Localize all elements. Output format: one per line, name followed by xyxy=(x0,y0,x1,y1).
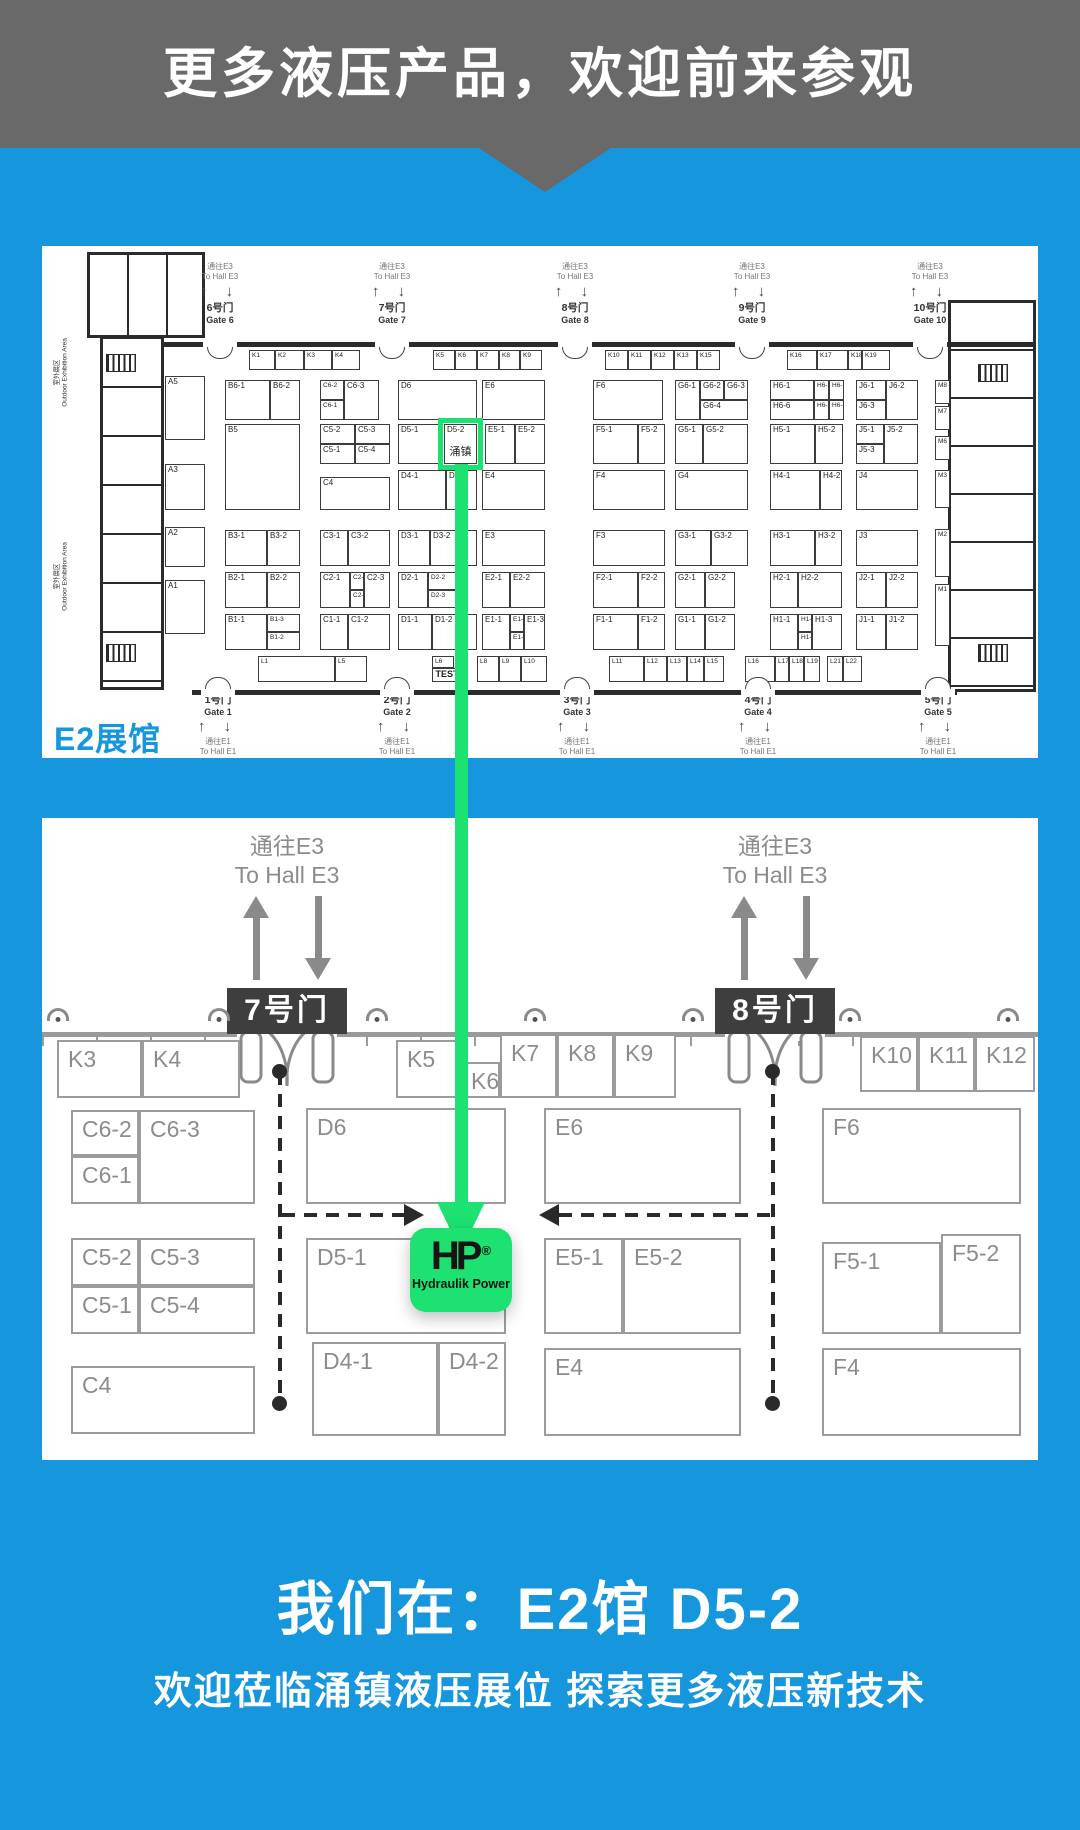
booth-label: C5-2 xyxy=(82,1245,132,1270)
booth-h1-2: H1-2 xyxy=(798,614,812,632)
booth-label: G1-1 xyxy=(678,616,696,625)
booth-k19: K19 xyxy=(862,350,890,370)
booth-h1-1: H1-1 xyxy=(770,614,798,650)
booth-label: H3-2 xyxy=(818,532,835,541)
booth-g6-4: G6-4 xyxy=(700,400,748,420)
booth-j6-2: J6-2 xyxy=(886,380,918,420)
gate-label-gate-7: 通往E3To Hall E3↑ ↓7号门Gate 7 xyxy=(352,262,432,325)
booth-k5: K5 xyxy=(396,1040,460,1098)
gate-label-gate-8: 通往E3To Hall E3↑ ↓8号门Gate 8 xyxy=(535,262,615,325)
booth-label: B1-1 xyxy=(228,616,245,625)
booth-label: J4 xyxy=(859,472,867,481)
booth-label: K3 xyxy=(68,1047,96,1072)
booth-label: K11 xyxy=(631,352,642,359)
gate-text: Gate 9 xyxy=(712,315,792,326)
booth-label: H6-2 xyxy=(817,382,829,389)
booth-g3-2: G3-2 xyxy=(711,530,748,566)
gate-door-icon xyxy=(564,677,590,689)
booth-k3: K3 xyxy=(304,350,332,370)
to-hall-label: To Hall E3 xyxy=(235,861,340,890)
booth-label: C4 xyxy=(82,1373,111,1398)
booth-label: B3-1 xyxy=(228,532,245,541)
booth-label: C4 xyxy=(323,479,333,488)
booth-h6-2: H6-2 xyxy=(814,380,829,400)
booth-l14: L14 xyxy=(687,656,704,682)
gate-text: To Hall E3 xyxy=(180,272,260,282)
booth-m8: M8 xyxy=(935,380,950,404)
booth-detail-panel: K3K4K5K6K7K8K9K10K11K12C6-2C6-1C6-3D6E6F… xyxy=(42,818,1038,1460)
booth-j1-1: J1-1 xyxy=(856,614,886,650)
booth-e5-1: E5-1 xyxy=(544,1238,623,1334)
booth-label: D6 xyxy=(317,1115,346,1140)
booth-label: G5-2 xyxy=(706,426,724,435)
route-dashed-line xyxy=(278,1072,282,1402)
booth-k3: K3 xyxy=(57,1040,142,1098)
booth-label: H6-6 xyxy=(773,402,790,411)
booth-k15: K15 xyxy=(697,350,720,370)
booth-f1-2: F1-2 xyxy=(638,614,665,650)
booth-label: K19 xyxy=(865,352,877,359)
booth-label: L1 xyxy=(261,658,268,665)
booth-c6-2: C6-2 xyxy=(71,1110,139,1156)
booth-d2-3: D2-3 xyxy=(428,590,456,608)
up-arrow-icon xyxy=(243,896,269,980)
booth-c5-4: C5-4 xyxy=(355,444,390,464)
booth-label: A5 xyxy=(168,378,178,387)
booth-l21: L21 xyxy=(827,656,843,682)
booth-c5-2: C5-2 xyxy=(320,424,355,444)
booth-l6: L6 xyxy=(432,656,454,668)
booth-g2-2: G2-2 xyxy=(705,572,735,608)
booth-h3-1: H3-1 xyxy=(770,530,815,566)
to-hall-label: 通往E3 xyxy=(250,832,324,861)
exhibitor-logo-badge: HP® Hydraulik Power xyxy=(410,1228,512,1312)
booth-l17: L17 xyxy=(775,656,789,682)
route-arrowhead-icon xyxy=(539,1204,559,1226)
booth-label: M3 xyxy=(938,472,947,479)
booth-label: L5 xyxy=(338,658,345,665)
booth-h2-1: H2-1 xyxy=(770,572,798,608)
booth-a1: A1 xyxy=(165,580,205,634)
booth-k7: K7 xyxy=(477,350,499,370)
gate-text: Gate 5 xyxy=(898,707,978,718)
booth-c3-2: C3-2 xyxy=(348,530,390,566)
gate-label-gate-2: 2号门Gate 2↑ ↓通往E1To Hall E1 xyxy=(357,694,437,757)
booth-c2-1: C2-1 xyxy=(320,572,350,608)
direction-arrows-icon: ↑ ↓ xyxy=(180,283,260,302)
booth-label: L14 xyxy=(690,658,701,665)
booth-d4-1: D4-1 xyxy=(312,1342,438,1436)
gate-label-gate-6: 通往E3To Hall E3↑ ↓6号门Gate 6 xyxy=(180,262,260,325)
booth-label: F5-2 xyxy=(952,1241,999,1266)
booth-f6: F6 xyxy=(822,1108,1021,1204)
booth-label: K8 xyxy=(502,352,510,359)
direction-arrows-icon: ↑ ↓ xyxy=(357,718,437,737)
booth-label: M2 xyxy=(938,531,947,538)
gate-label-gate-3: 3号门Gate 3↑ ↓通往E1To Hall E1 xyxy=(537,694,617,757)
booth-g5-2: G5-2 xyxy=(703,424,748,464)
route-dashed-line xyxy=(559,1213,771,1217)
booth-label: D6 xyxy=(401,382,411,391)
booth-d5-1: D5-1 xyxy=(398,424,442,464)
booth-e2-2: E2-2 xyxy=(510,572,545,608)
booth-label: F5-2 xyxy=(641,426,657,435)
top-banner: 更多液压产品，欢迎前来参观 xyxy=(0,0,1080,148)
gate-text: 通往E1 xyxy=(537,737,617,747)
direction-arrows-icon: ↑ ↓ xyxy=(712,283,792,302)
booth-label: B5 xyxy=(228,426,238,435)
booth-e4: E4 xyxy=(482,470,545,510)
route-dot xyxy=(765,1396,780,1411)
booth-label: K6 xyxy=(471,1069,499,1094)
booth-a3: A3 xyxy=(165,464,205,510)
booth-e5-2: E5-2 xyxy=(515,424,545,464)
booth-k11: K11 xyxy=(918,1036,975,1092)
gate-text: Gate 2 xyxy=(357,707,437,718)
gate-text: Gate 10 xyxy=(890,315,970,326)
booth-j1-2: J1-2 xyxy=(886,614,918,650)
booth-label: E1-3 xyxy=(527,616,544,625)
booth-label: J6-1 xyxy=(859,382,875,391)
booth-label: K8 xyxy=(568,1041,596,1066)
gate-door-icon xyxy=(207,347,233,359)
gate-text: 通往E3 xyxy=(712,262,792,272)
booth-j6-1: J6-1 xyxy=(856,380,886,400)
booth-c2-3: C2-3 xyxy=(364,572,390,608)
gate-door-icon xyxy=(379,347,405,359)
booth-j6-3: J6-3 xyxy=(856,400,886,420)
booth-label: D5-2 xyxy=(447,426,464,435)
booth-label: H6-3 xyxy=(832,382,844,389)
booth-label: C2-3 xyxy=(367,574,384,583)
gate-opening xyxy=(921,688,955,697)
direction-arrows-icon: ↑ ↓ xyxy=(352,283,432,302)
booth-label: L15 xyxy=(707,658,718,665)
booth-c2-4: C2-4 xyxy=(350,572,364,590)
booth-g4: G4 xyxy=(675,470,748,510)
booth-k9: K9 xyxy=(520,350,542,370)
gate-opening xyxy=(380,688,414,697)
booth-label: K2 xyxy=(278,352,286,359)
booth-label: K17 xyxy=(820,352,832,359)
booth-k4: K4 xyxy=(332,350,360,370)
booth-label: F5-1 xyxy=(833,1249,880,1274)
booth-label: H5-2 xyxy=(818,426,835,435)
booth-g1-2: G1-2 xyxy=(705,614,735,650)
booth-d4-2: D4-2 xyxy=(438,1342,506,1436)
logo-company-name: Hydraulik Power xyxy=(410,1277,512,1291)
direction-arrows-icon: ↑ ↓ xyxy=(890,283,970,302)
gate-text: 通往E1 xyxy=(178,737,258,747)
booth-g3-1: G3-1 xyxy=(675,530,711,566)
gate-text: To Hall E1 xyxy=(898,747,978,757)
gate-opening xyxy=(201,688,235,697)
gate-door-icon xyxy=(562,347,588,359)
booth-c1-1: C1-1 xyxy=(320,614,348,650)
booth-label: K3 xyxy=(307,352,315,359)
booth-e1-2: E1-2 xyxy=(510,614,524,632)
booth-l9: L9 xyxy=(499,656,521,682)
booth-d6: D6 xyxy=(306,1108,506,1204)
banner-notch xyxy=(479,148,611,192)
booth-h3-2: H3-2 xyxy=(815,530,842,566)
gate-text: 7号门 xyxy=(352,302,432,315)
booth-label: G3-1 xyxy=(678,532,696,541)
booth-label: L17 xyxy=(778,658,789,665)
booth-label: L9 xyxy=(502,658,509,665)
booth-m1: M1 xyxy=(935,584,950,646)
building-outline xyxy=(100,336,164,690)
security-camera-icon xyxy=(524,1008,546,1021)
booth-l19: L19 xyxy=(804,656,820,682)
booth-c2-2: C2-2 xyxy=(350,590,364,608)
security-camera-icon xyxy=(997,1008,1019,1021)
booth-h6-5: H6-5 xyxy=(814,400,829,420)
direction-arrows xyxy=(243,896,331,980)
booth-k18: K18 xyxy=(848,350,862,370)
booth-label: H1-3 xyxy=(815,616,832,625)
booth-label: J1-1 xyxy=(859,616,875,625)
booth-label: D5-1 xyxy=(317,1245,367,1270)
booth-label: C6-2 xyxy=(323,382,337,389)
booth-e6: E6 xyxy=(544,1108,741,1204)
direction-arrows-icon: ↑ ↓ xyxy=(718,718,798,737)
booth-label: G5-1 xyxy=(678,426,696,435)
booth-label: L18 xyxy=(792,658,803,665)
building-outline xyxy=(948,300,1036,692)
booth-label: E5-2 xyxy=(634,1245,683,1270)
booth-k5: K5 xyxy=(433,350,455,370)
booth-f5-1: F5-1 xyxy=(593,424,638,464)
direction-arrows xyxy=(731,896,819,980)
booth-label: M6 xyxy=(938,438,947,445)
to-hall-label: 通往E3 xyxy=(738,832,812,861)
booth-label: G6-2 xyxy=(703,382,721,391)
booth-label: K4 xyxy=(335,352,343,359)
outdoor-area-label: 室外展区 Outdoor Exhibition Area xyxy=(54,520,71,632)
booth-c6-1: C6-1 xyxy=(320,400,344,420)
gate-label-gate-10: 通往E3To Hall E3↑ ↓10号门Gate 10 xyxy=(890,262,970,325)
booth-l13: L13 xyxy=(667,656,687,682)
booth-k7: K7 xyxy=(500,1034,557,1098)
booth-label: D2-2 xyxy=(431,574,445,581)
booth-h6-4: H6-4 xyxy=(829,400,844,420)
booth-label: C3-2 xyxy=(351,532,368,541)
hall-wall xyxy=(164,342,1035,347)
booth-d4-1: D4-1 xyxy=(398,470,446,510)
static xyxy=(315,896,322,958)
booth-k9: K9 xyxy=(614,1034,676,1098)
booth-h4-2: H4-2 xyxy=(820,470,842,510)
booth-label: H1-4 xyxy=(801,634,812,641)
booth-label: F4 xyxy=(596,472,605,481)
gate-door-icon xyxy=(739,347,765,359)
booth-label: F5-1 xyxy=(596,426,612,435)
booth-b1-2: B1-2 xyxy=(267,632,300,650)
static xyxy=(793,958,819,980)
booth-f4: F4 xyxy=(822,1348,1021,1436)
booth-label: G2-2 xyxy=(708,574,726,583)
booth-j5-1: J5-1 xyxy=(856,424,884,444)
booth-label: E2-1 xyxy=(485,574,502,583)
gate-text: 10号门 xyxy=(890,302,970,315)
booth-label: B1-2 xyxy=(270,634,284,641)
direction-arrows-icon: ↑ ↓ xyxy=(178,718,258,737)
booth-label: D3-1 xyxy=(401,532,418,541)
booth-a5: A5 xyxy=(165,376,205,440)
booth-f5-1: F5-1 xyxy=(822,1242,941,1334)
booth-c6-1: C6-1 xyxy=(71,1156,139,1204)
booth-label: B2-1 xyxy=(228,574,245,583)
booth-h2-2: H2-2 xyxy=(798,572,842,608)
booth-c6-3: C6-3 xyxy=(344,380,379,420)
gate-text: 9号门 xyxy=(712,302,792,315)
hp-logo-icon: HP® xyxy=(410,1236,512,1276)
booth-label: J3 xyxy=(859,532,867,541)
booth-label: C6-3 xyxy=(150,1117,200,1142)
booth-label: H1-2 xyxy=(801,616,812,623)
gate-block-8号门: 通往E3To Hall E38号门 xyxy=(665,832,885,1034)
booth-m3: M3 xyxy=(935,470,950,508)
booth-label: D3-2 xyxy=(433,532,450,541)
booth-g6-2: G6-2 xyxy=(700,380,724,400)
booth-f3: F3 xyxy=(593,530,665,566)
gate-name-badge: 7号门 xyxy=(227,988,347,1034)
booth-c5-4: C5-4 xyxy=(139,1286,255,1334)
gate-text: 6号门 xyxy=(180,302,260,315)
booth-f2-1: F2-1 xyxy=(593,572,638,608)
booth-label: E4 xyxy=(485,472,495,481)
booth-label: E5-2 xyxy=(518,426,535,435)
direction-arrows-icon: ↑ ↓ xyxy=(537,718,617,737)
booth-k10: K10 xyxy=(860,1036,918,1092)
gate-text: Gate 4 xyxy=(718,707,798,718)
booth-label: K9 xyxy=(523,352,531,359)
booth-label: L12 xyxy=(647,658,658,665)
route-arrowhead-icon xyxy=(404,1204,424,1226)
booth-label: H3-1 xyxy=(773,532,790,541)
booth-label: K7 xyxy=(480,352,488,359)
booth-h6-1: H6-1 xyxy=(770,380,814,400)
booth-j3: J3 xyxy=(856,530,918,566)
booth-j2-2: J2-2 xyxy=(886,572,918,608)
booth-d2-1: D2-1 xyxy=(398,572,428,608)
booth-label: D5-1 xyxy=(401,426,418,435)
booth-g1-1: G1-1 xyxy=(675,614,705,650)
gate-text: 通往E1 xyxy=(357,737,437,747)
gate-label-gate-5: 5号门Gate 5↑ ↓通往E1To Hall E1 xyxy=(898,694,978,757)
booth-label: A3 xyxy=(168,466,178,475)
booth-label: C1-2 xyxy=(351,616,368,625)
booth-label: M7 xyxy=(938,408,947,415)
booth-h4-1: H4-1 xyxy=(770,470,820,510)
booth-label: C1-1 xyxy=(323,616,340,625)
booth-k4: K4 xyxy=(142,1040,240,1098)
booth-label: L10 xyxy=(524,658,535,665)
route-dashed-line xyxy=(771,1072,775,1402)
booth-label: B6-2 xyxy=(273,382,290,391)
booth-label: F1-1 xyxy=(596,616,612,625)
booth-label: D2-3 xyxy=(431,592,445,599)
booth-b5: B5 xyxy=(225,424,300,510)
gate-opening xyxy=(560,688,594,697)
booth-label: K15 xyxy=(700,352,712,359)
booth-label: M1 xyxy=(938,586,947,593)
booth-label: K7 xyxy=(511,1041,539,1066)
booth-label: J2-2 xyxy=(889,574,905,583)
booth-label: K5 xyxy=(436,352,444,359)
booth-label: B6-1 xyxy=(228,382,245,391)
booth-j5-3: J5-3 xyxy=(856,444,884,464)
booth-label: M8 xyxy=(938,382,947,389)
booth-e3: E3 xyxy=(482,530,545,566)
gate-text: 8号门 xyxy=(535,302,615,315)
booth-label: J1-2 xyxy=(889,616,905,625)
stairs-icon xyxy=(106,644,136,662)
booth-label: C5-1 xyxy=(82,1293,132,1318)
booth-label: A1 xyxy=(168,582,178,591)
gate-name-badge: 8号门 xyxy=(715,988,835,1034)
booth-k12: K12 xyxy=(651,350,674,370)
booth-b6-1: B6-1 xyxy=(225,380,270,420)
booth-label: C6-1 xyxy=(323,402,337,409)
booth-label: J5-1 xyxy=(859,426,875,435)
booth-c6-2: C6-2 xyxy=(320,380,344,400)
booth-d1-1: D1-1 xyxy=(398,614,432,650)
booth-b3-2: B3-2 xyxy=(267,530,300,566)
booth-e6: E6 xyxy=(482,380,545,420)
booth-label: F4 xyxy=(833,1355,860,1380)
booth-g6-3: G6-3 xyxy=(724,380,748,400)
booth-label: L11 xyxy=(612,658,622,665)
booth-m2: M2 xyxy=(935,529,950,577)
booth-label: F2-1 xyxy=(596,574,612,583)
banner-title: 更多液压产品，欢迎前来参观 xyxy=(0,0,1080,148)
booth-label: H6-1 xyxy=(773,382,790,391)
booth-j4: J4 xyxy=(856,470,918,510)
security-camera-icon xyxy=(47,1008,69,1021)
hall-name-label: E2展馆 xyxy=(54,714,161,760)
booth-b1-3: B1-3 xyxy=(267,614,300,632)
direction-arrows-icon: ↑ ↓ xyxy=(898,718,978,737)
down-arrow-icon xyxy=(305,896,331,980)
booth-label: G2-1 xyxy=(678,574,696,583)
booth-l5: L5 xyxy=(335,656,367,682)
booth-g2-1: G2-1 xyxy=(675,572,705,608)
booth-label: H4-2 xyxy=(823,472,840,481)
route-dot xyxy=(272,1064,287,1079)
booth-k17: K17 xyxy=(817,350,848,370)
gate-text: Gate 6 xyxy=(180,315,260,326)
booth-label: F1-2 xyxy=(641,616,657,625)
direction-arrows-icon: ↑ ↓ xyxy=(535,283,615,302)
booth-e1-1: E1-1 xyxy=(482,614,510,650)
booth-label: K4 xyxy=(153,1047,181,1072)
route-dashed-line xyxy=(282,1213,404,1217)
booth-label: C6-2 xyxy=(82,1117,132,1142)
booth-k1: K1 xyxy=(249,350,275,370)
booth-label: D1-1 xyxy=(401,616,418,625)
location-headline: 我们在：E2馆 D5-2 xyxy=(0,1562,1080,1646)
booth-g6-1: G6-1 xyxy=(675,380,700,420)
booth-label: B1-3 xyxy=(270,616,284,623)
booth-m6: M6 xyxy=(935,436,950,460)
booth-label: J6-2 xyxy=(889,382,905,391)
booth-label: B3-2 xyxy=(270,532,287,541)
booth-f6: F6 xyxy=(593,380,663,420)
gate-text: 通往E3 xyxy=(352,262,432,272)
hall-floorplan-panel: 室外展区 Outdoor Exhibition Area 室外展区 Outdoo… xyxy=(42,246,1038,758)
